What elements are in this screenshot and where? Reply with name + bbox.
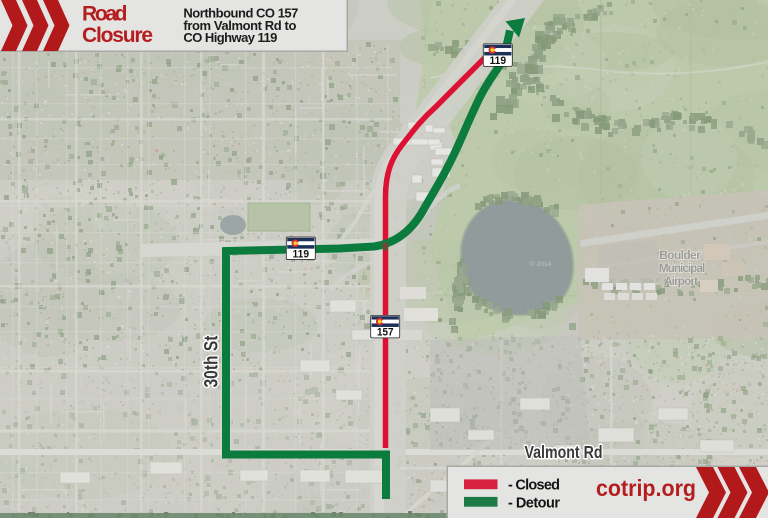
- svg-text:Airport: Airport: [664, 274, 698, 288]
- svg-text:cotrip.org: cotrip.org: [596, 475, 696, 501]
- svg-text:CO Highway 119: CO Highway 119: [183, 30, 277, 45]
- svg-text:119: 119: [293, 248, 310, 260]
- svg-text:- Detour: - Detour: [508, 496, 560, 512]
- svg-text:Municipal: Municipal: [659, 261, 706, 275]
- svg-text:Road: Road: [82, 3, 128, 26]
- svg-text:119: 119: [490, 55, 507, 67]
- svg-text:Valmont Rd: Valmont Rd: [525, 442, 603, 462]
- svg-text:Boulder: Boulder: [659, 248, 701, 262]
- svg-text:Closure: Closure: [82, 24, 153, 47]
- svg-text:© 2014: © 2014: [530, 260, 551, 268]
- svg-text:157: 157: [377, 327, 394, 339]
- svg-text:- Closed: - Closed: [508, 478, 560, 494]
- svg-text:30th St: 30th St: [202, 335, 223, 388]
